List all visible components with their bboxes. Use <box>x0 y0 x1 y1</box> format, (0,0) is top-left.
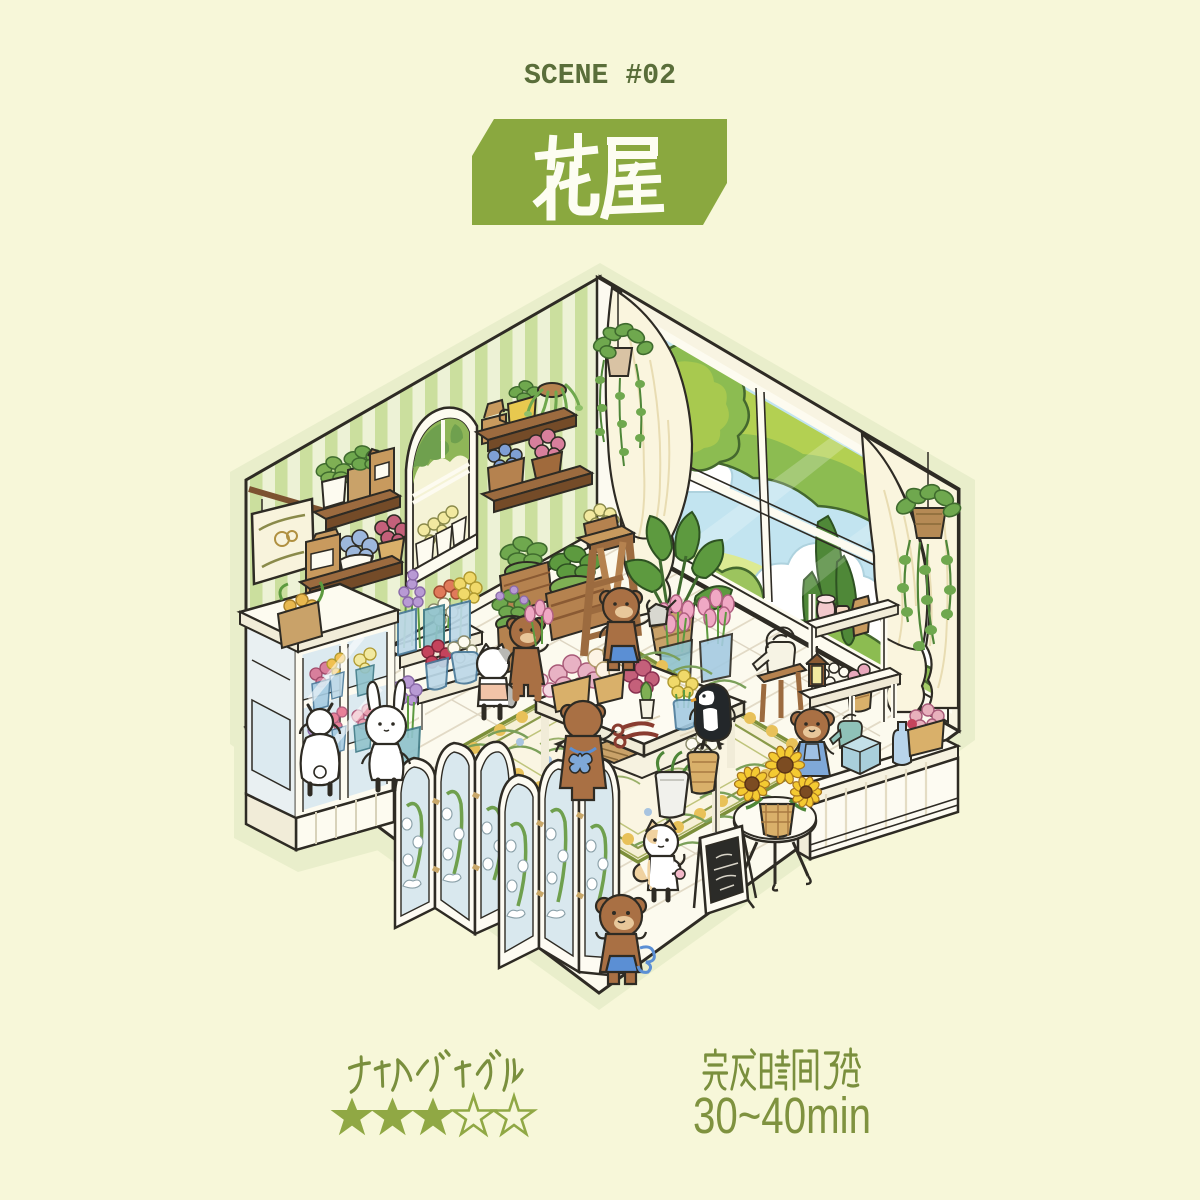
svg-text:SCENE #02: SCENE #02 <box>524 59 676 92</box>
svg-text:30~40min: 30~40min <box>693 1087 871 1144</box>
